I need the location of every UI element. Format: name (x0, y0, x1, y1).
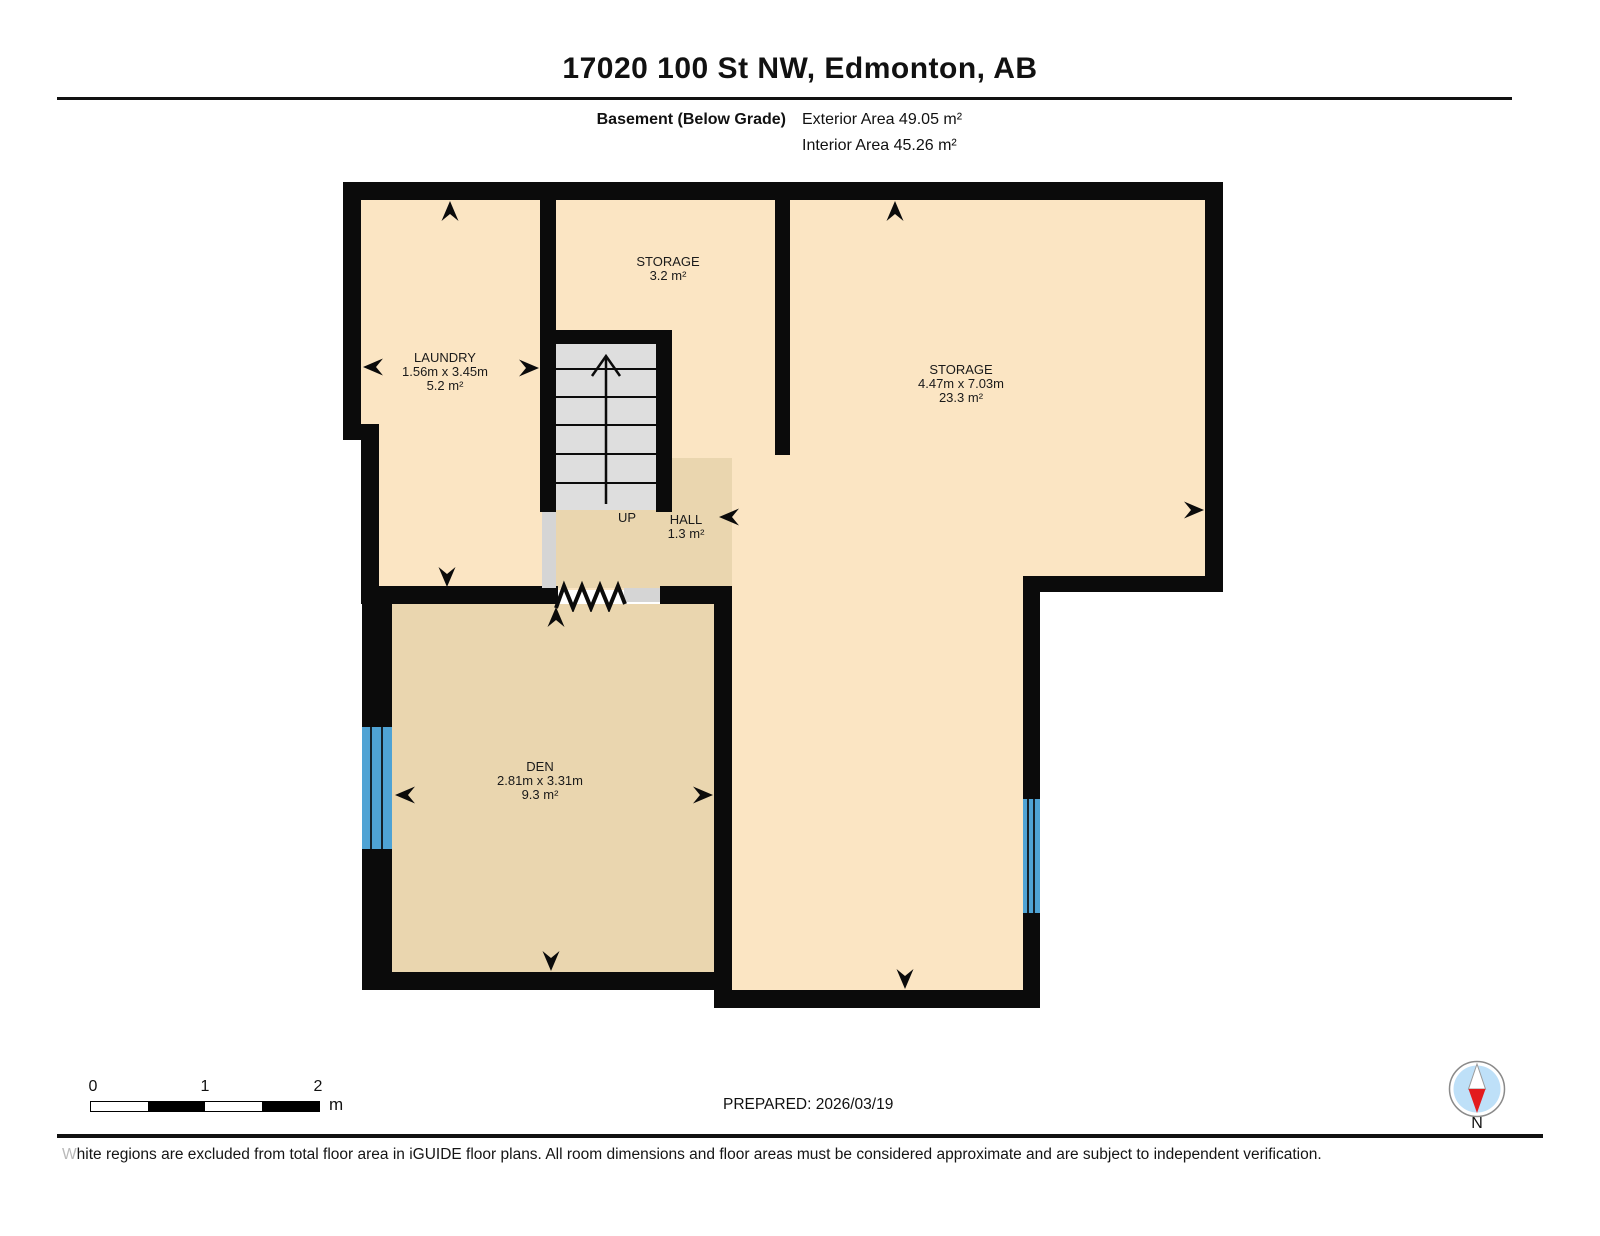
dimension-arrow-right-icon (1183, 499, 1205, 521)
scale-bar (90, 1101, 320, 1112)
compass-icon (1448, 1060, 1506, 1118)
dimension-arrow-right-icon (692, 784, 714, 806)
wall-den-right (714, 586, 732, 990)
dimension-arrow-down-icon (436, 566, 458, 588)
dimension-arrow-up-icon (545, 606, 567, 628)
dimension-arrow-down-icon (894, 968, 916, 990)
stairs-up-label: UP (618, 511, 636, 525)
scale-tick-1: 1 (201, 1078, 210, 1096)
room-label-hall: HALL1.3 m² (668, 513, 705, 541)
wall-den-top-left (361, 586, 558, 604)
floor-plan-page: 17020 100 St NW, Edmonton, AB Basement (… (0, 0, 1600, 1236)
stairs-arrow-icon (556, 344, 656, 510)
wall-stairs-right (656, 330, 672, 512)
room-fill-laundry (361, 197, 556, 590)
wall-den-left-b (362, 847, 392, 990)
wall-storage-bottom (714, 990, 1040, 1008)
scale-tick-0: 0 (89, 1078, 98, 1096)
wall-right-outer (1205, 182, 1223, 592)
prepared-date: PREPARED: 2026/03/19 (723, 1096, 893, 1114)
dimension-arrow-left-icon (362, 356, 384, 378)
dimension-arrow-down-icon (540, 950, 562, 972)
opening-laundry-hall (542, 512, 556, 588)
dimension-arrow-up-icon (884, 200, 906, 222)
scale-unit: m (329, 1095, 343, 1115)
room-label-storage-large: STORAGE4.47m x 7.03m23.3 m² (918, 363, 1004, 405)
floor-plan: LAUNDRY1.56m x 3.45m5.2 m² STORAGE3.2 m²… (0, 0, 1600, 1236)
dimension-arrow-left-icon (718, 506, 740, 528)
wall-left-upper (343, 182, 361, 440)
wall-laundry-storage (540, 197, 556, 346)
dimension-arrow-left-icon (394, 784, 416, 806)
disclaimer-text: White regions are excluded from total fl… (62, 1146, 1322, 1164)
room-label-storage-small: STORAGE3.2 m² (636, 255, 699, 283)
dimension-arrow-right-icon (518, 357, 540, 379)
wall-step-horizontal (1023, 576, 1223, 592)
wall-den-bottom (362, 972, 732, 990)
compass-n-label: N (1471, 1115, 1483, 1133)
wall-storage-divider (775, 197, 790, 455)
dimension-arrow-up-icon (439, 200, 461, 222)
footer-divider (57, 1134, 1543, 1138)
stairs (556, 344, 656, 510)
scale-tick-2: 2 (314, 1078, 323, 1096)
window-icon-storage (1023, 798, 1040, 914)
room-fill-storage-large-lower (732, 455, 1023, 990)
window-icon-den (362, 725, 392, 851)
wall-stairs-left (540, 330, 556, 512)
room-label-laundry: LAUNDRY1.56m x 3.45m5.2 m² (402, 351, 488, 393)
room-label-den: DEN2.81m x 3.31m9.3 m² (497, 760, 583, 802)
wall-right-lower-a (1023, 576, 1040, 798)
wall-left-laundry-lower (361, 424, 379, 590)
wall-den-left-a (362, 588, 392, 725)
